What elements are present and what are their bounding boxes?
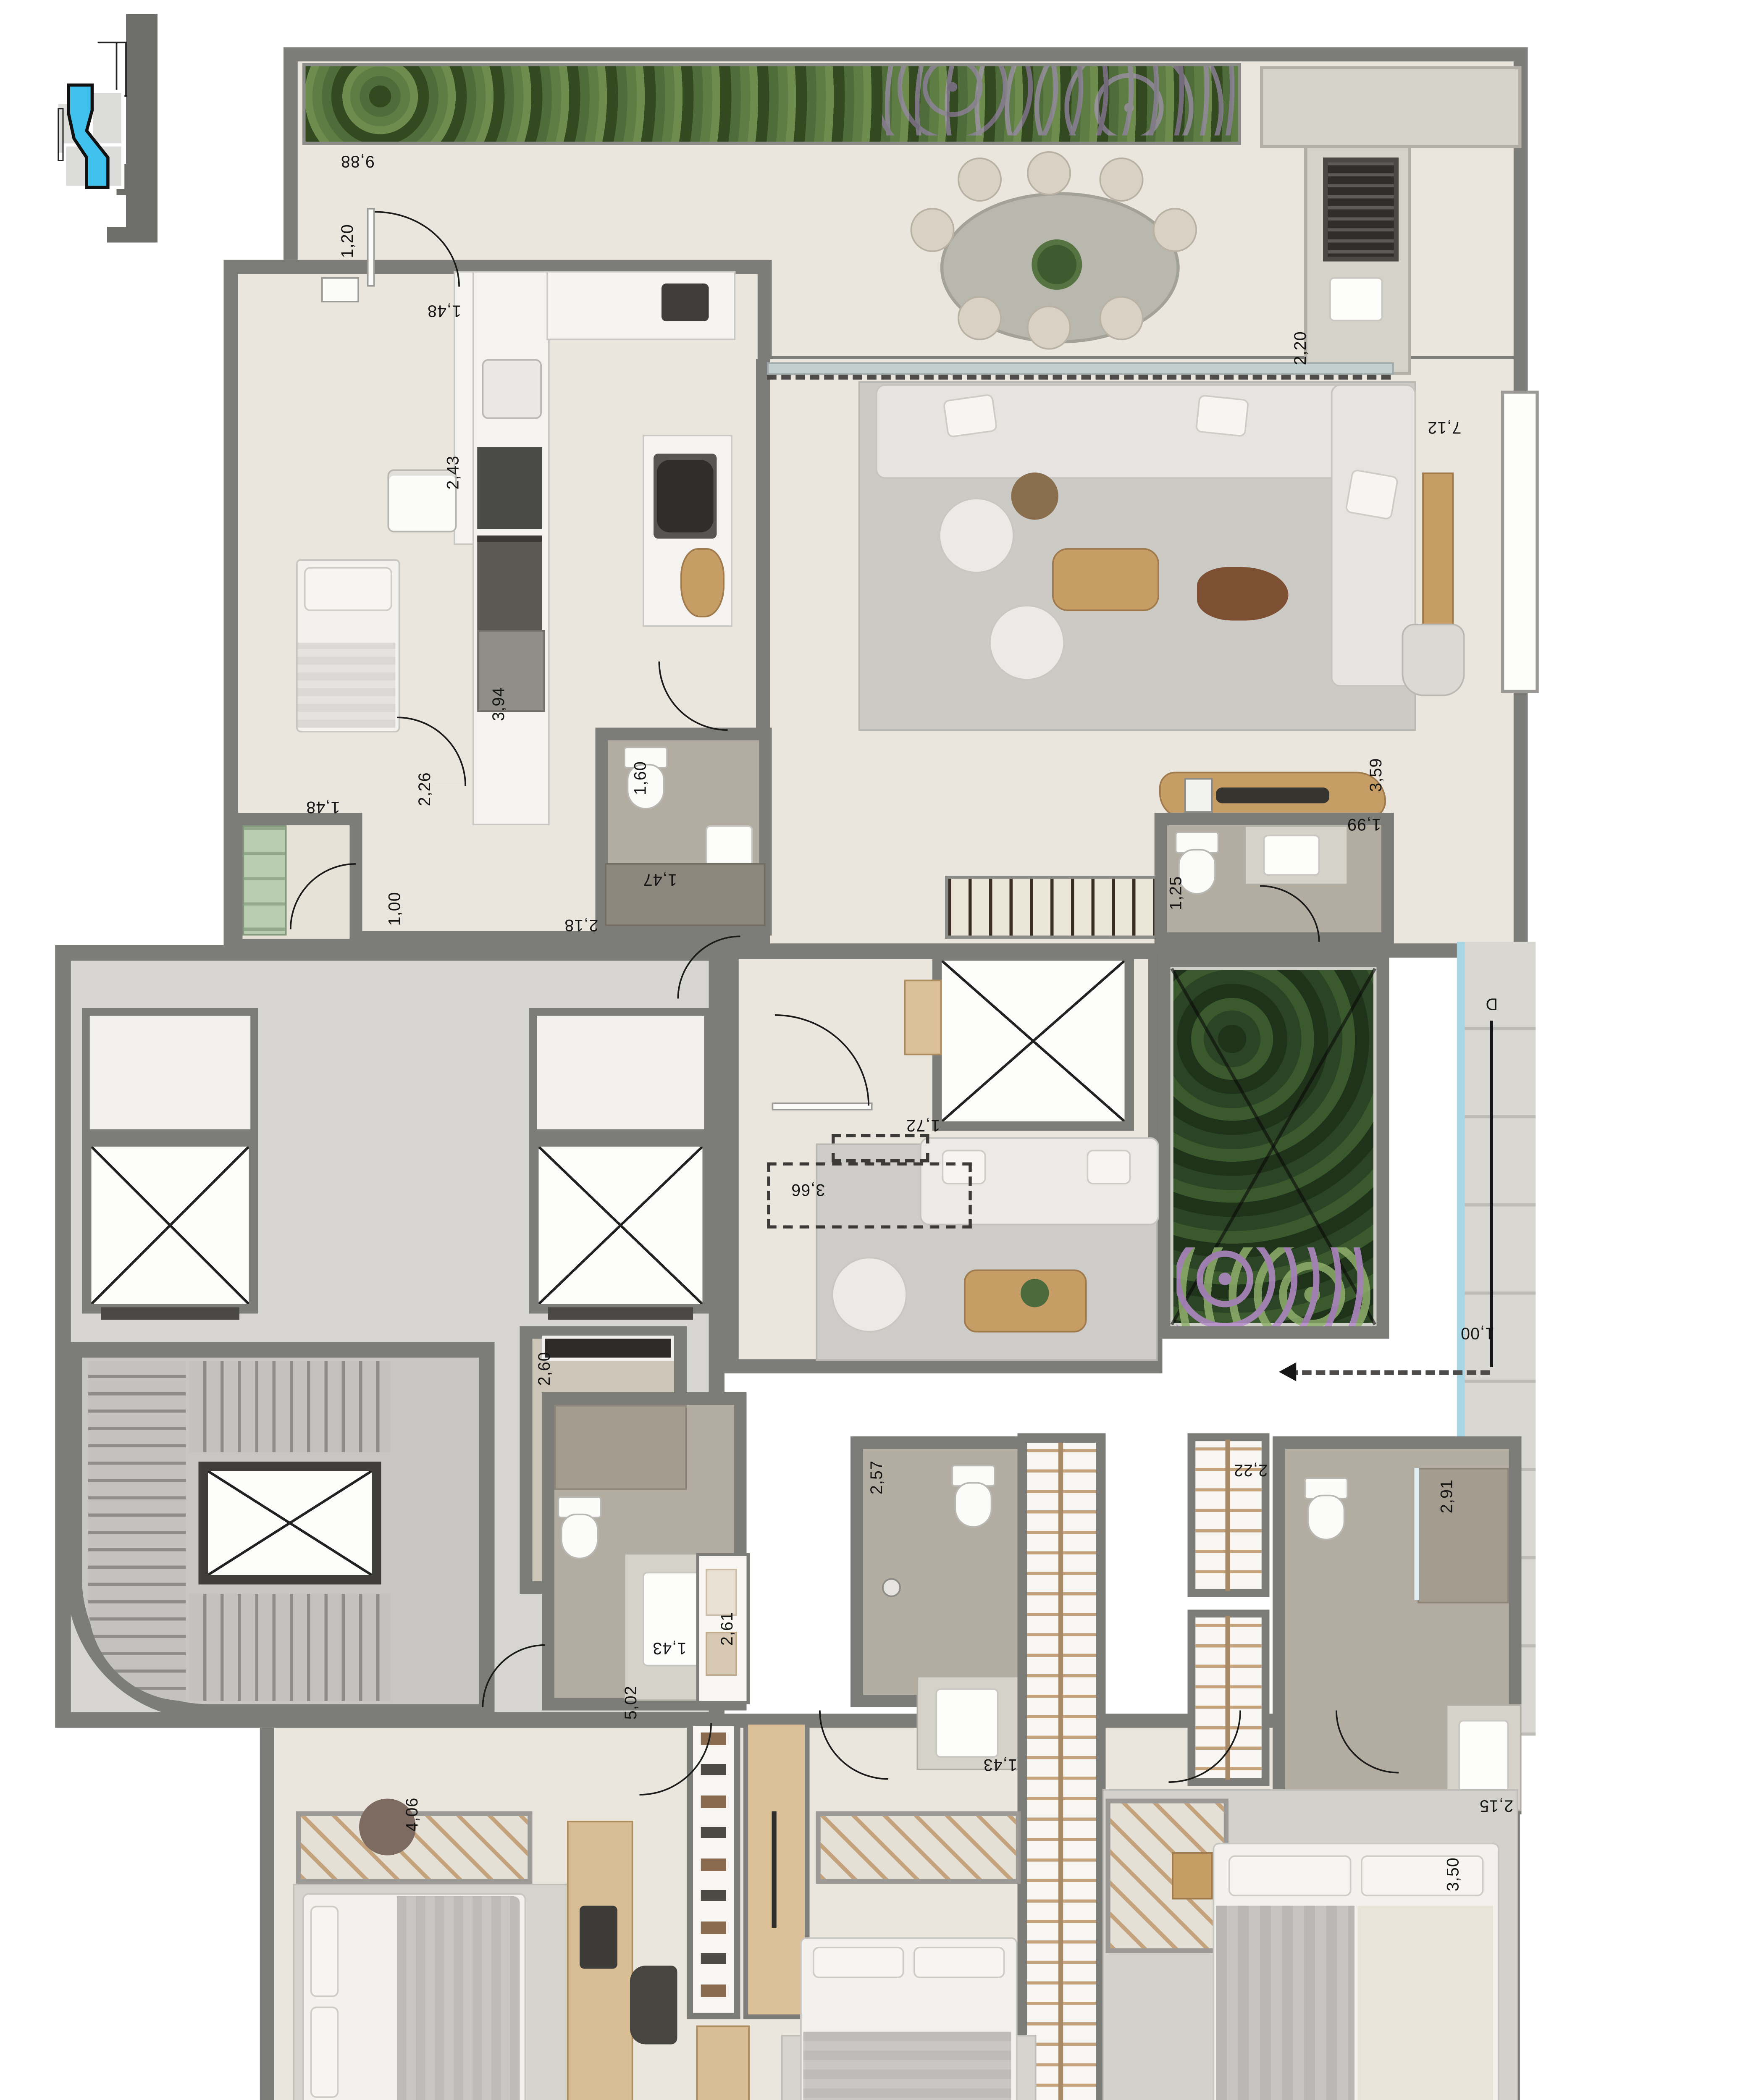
dimension-label: 1,43 — [983, 1755, 1017, 1774]
dimension-label: 1,20 — [339, 224, 357, 258]
dimension-label: 1,48 — [427, 301, 461, 320]
dimension-label: 2,61 — [718, 1612, 737, 1646]
dimension-label: 2,43 — [444, 455, 463, 489]
dimension-label: 5,02 — [622, 1685, 641, 1719]
dimension-label: 9,88 — [341, 151, 375, 170]
dimension-label: 7,12 — [1427, 417, 1461, 436]
dimension-label: 3,50 — [1444, 1857, 1463, 1891]
dimension-label: 1,47 — [643, 869, 677, 888]
dimension-label: 1,00 — [1460, 1323, 1494, 1342]
dimension-label: 1,48 — [306, 797, 340, 816]
dimension-label: 1,25 — [1167, 876, 1186, 910]
dimension-label: 2,18 — [564, 915, 598, 934]
dimension-label: 1,72 — [906, 1115, 940, 1134]
dimension-labels-layer: 9,881,201,482,432,207,123,942,261,481,60… — [0, 0, 1764, 2100]
dimension-label: 1,60 — [632, 761, 651, 795]
dimension-label: 1,00 — [386, 892, 405, 926]
section-marker-label: D — [1485, 994, 1498, 1013]
floor-plan-canvas: 9,881,201,482,432,207,123,942,261,481,60… — [0, 0, 1764, 2100]
dimension-label: 3,94 — [490, 687, 509, 721]
dimension-label: 2,26 — [416, 772, 435, 806]
dimension-label: 3,59 — [1367, 758, 1386, 792]
dimension-label: 3,66 — [791, 1180, 825, 1199]
dimension-label: 2,22 — [1234, 1460, 1268, 1479]
dimension-label: 2,15 — [1479, 1795, 1513, 1814]
dimension-label: 2,57 — [868, 1460, 887, 1494]
dimension-label: 4,06 — [403, 1797, 422, 1831]
dimension-label: 1,43 — [652, 1638, 686, 1657]
dimension-label: 2,60 — [535, 1352, 554, 1386]
dimension-label: 2,91 — [1438, 1479, 1457, 1513]
dimension-label: 2,20 — [1291, 331, 1310, 365]
dimension-label: 1,99 — [1347, 814, 1381, 833]
